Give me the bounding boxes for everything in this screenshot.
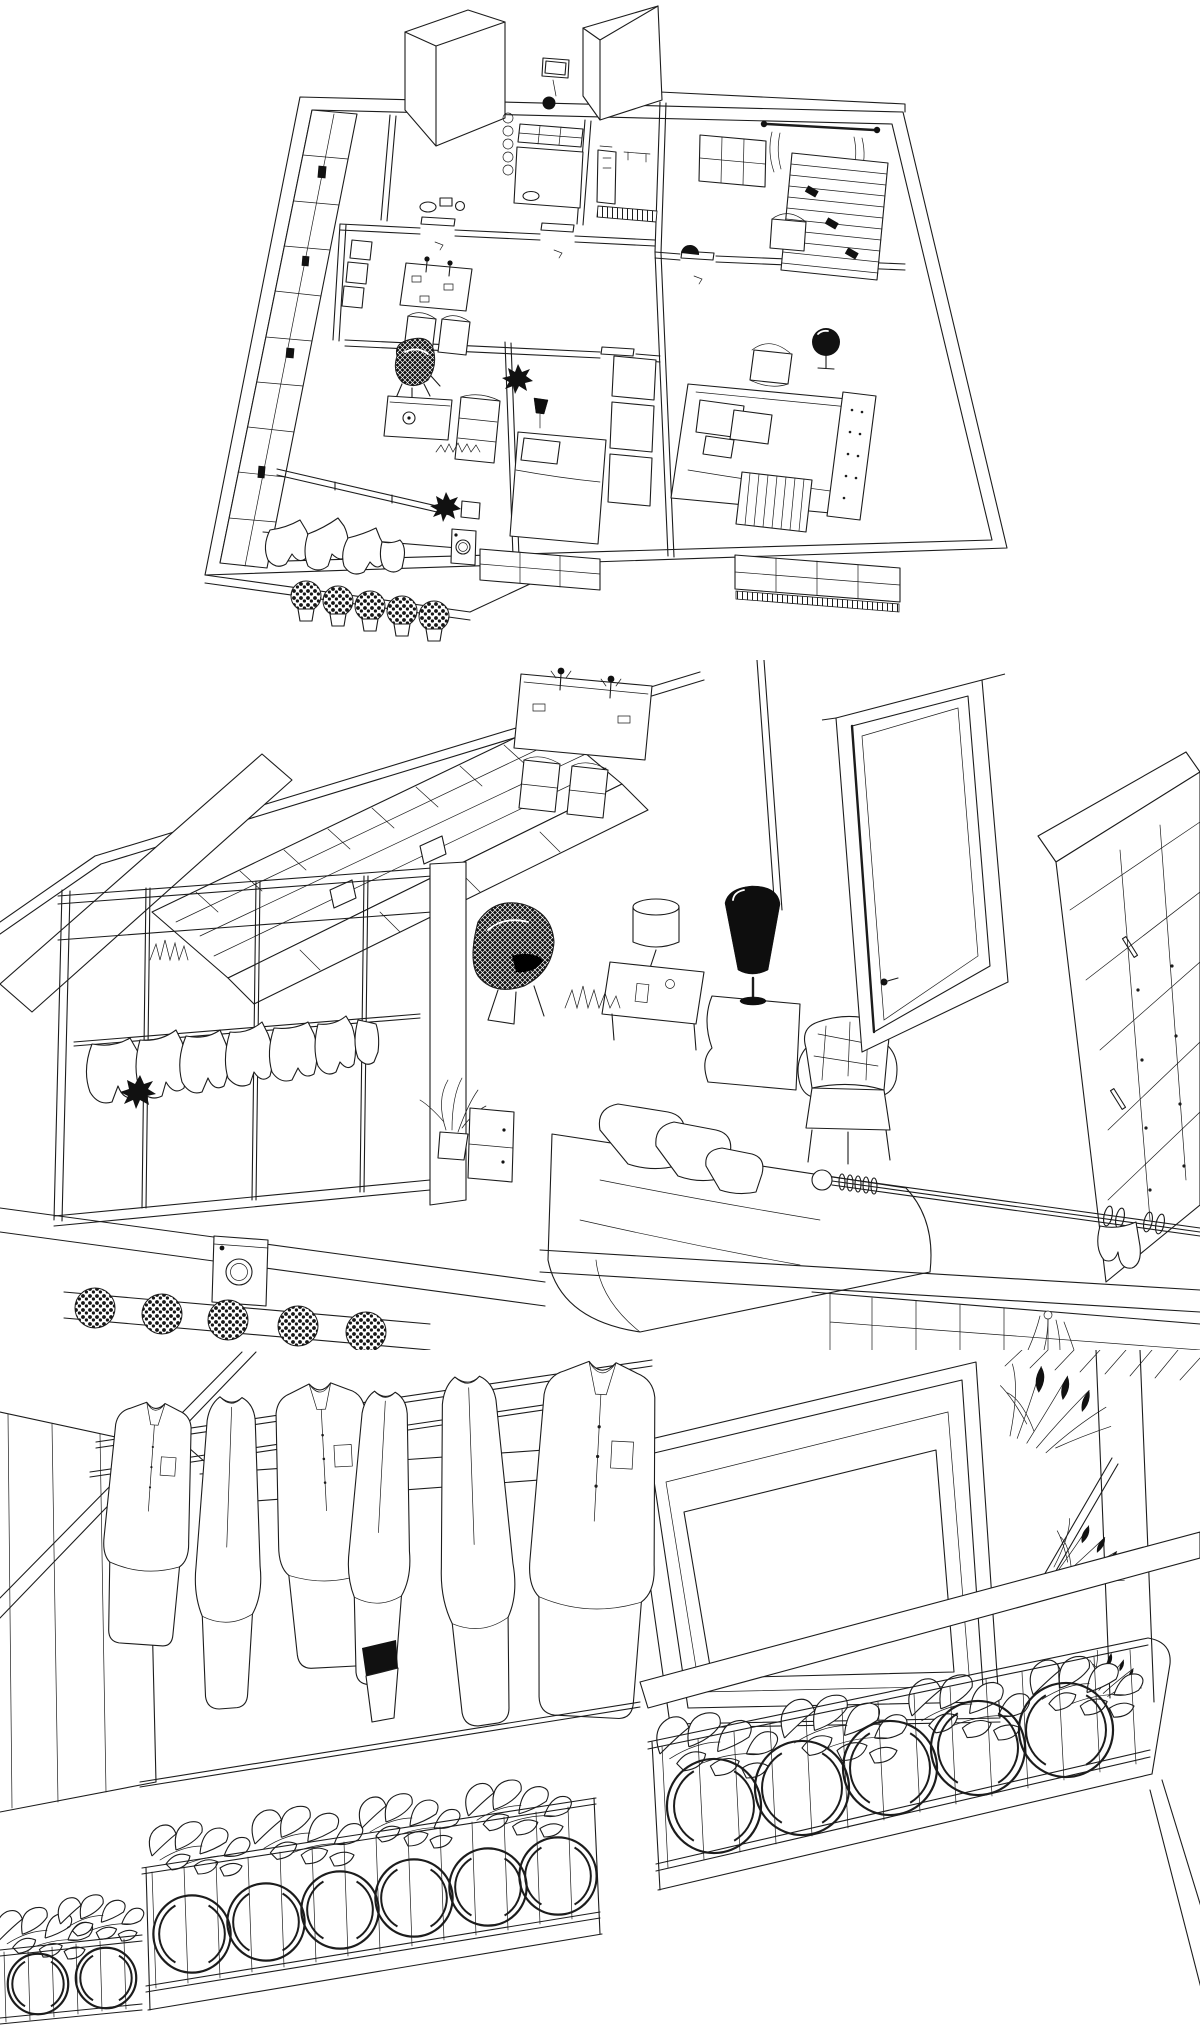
planter-box — [461, 501, 480, 519]
washing-machine — [212, 1236, 268, 1306]
interior-perspective-panel — [0, 660, 1200, 1350]
sofa — [455, 397, 500, 463]
floor-plan-figure — [0, 0, 1200, 660]
hatch-strokes — [1005, 1350, 1200, 1380]
chest-of-drawers — [1038, 752, 1200, 1282]
dining-table — [514, 674, 652, 760]
bedroom-armchair — [750, 350, 792, 384]
balcony-closeup-panel — [0, 1350, 1200, 2025]
open-door — [822, 674, 1008, 1052]
pillow — [521, 438, 560, 464]
planter-center — [142, 1780, 602, 2010]
interior-perspective-figure — [0, 660, 1200, 1350]
finial-ball-icon — [812, 1170, 832, 1190]
kettle-icon — [543, 97, 556, 110]
balcony-closeup-figure — [0, 1350, 1200, 2025]
sink-icon — [523, 192, 539, 201]
curtain-swag — [1028, 1311, 1074, 1350]
drying-shirts — [97, 1359, 665, 1727]
pillow — [730, 410, 772, 444]
right-edge-diagonals — [1150, 1780, 1200, 1992]
grass-icon — [150, 940, 188, 960]
wire-lounge-chair — [395, 338, 434, 385]
chair — [438, 319, 470, 355]
floor-plan-overview-panel — [0, 0, 1200, 660]
desk-with-lamp — [602, 899, 704, 1050]
cone-lamp-side-table — [705, 886, 800, 1090]
cylinder-lamp-icon — [633, 899, 679, 915]
bed — [548, 1104, 931, 1332]
hall-tall-wall — [583, 6, 662, 120]
wardrobe-stack — [608, 356, 656, 506]
picture-frame-icon — [542, 58, 569, 78]
nursery-armchair — [770, 219, 806, 251]
balcony-laundry — [74, 1014, 420, 1103]
right-wall — [1040, 1350, 1154, 1702]
desk — [602, 962, 704, 1024]
pillow — [703, 436, 734, 458]
perspective-bookshelf — [152, 722, 648, 1004]
wire-ball-chair — [473, 903, 554, 1024]
dining-table — [400, 263, 472, 311]
planter-left — [0, 1895, 144, 2024]
sphere-lamp-icon — [812, 328, 840, 356]
